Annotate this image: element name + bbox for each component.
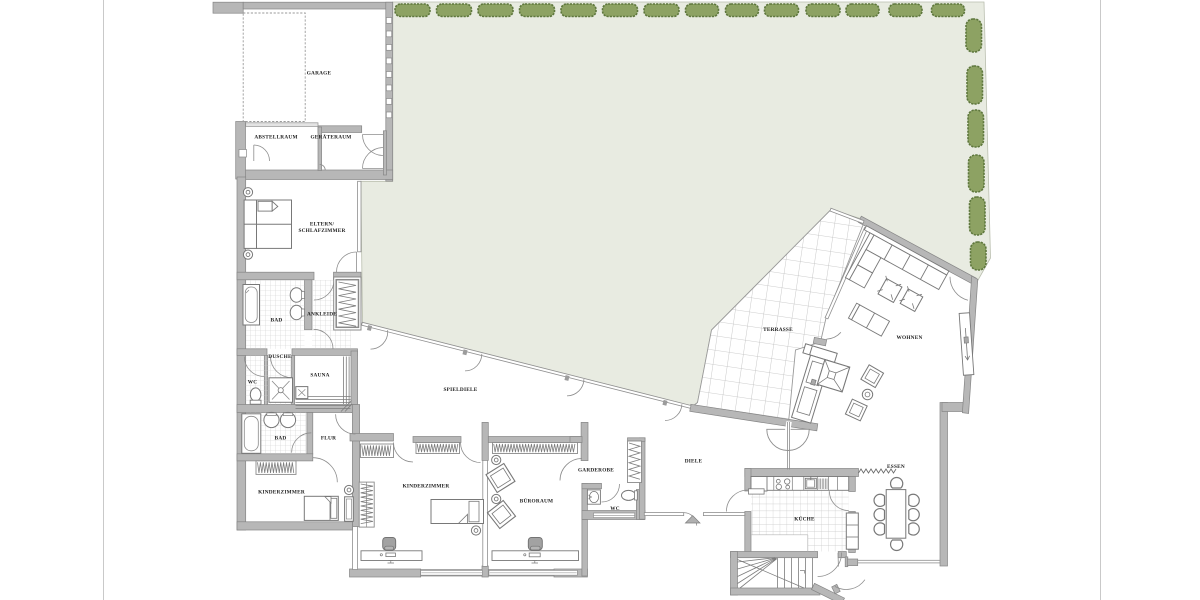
- svg-text:ELTERN/: ELTERN/: [310, 222, 335, 228]
- svg-text:KÜCHE: KÜCHE: [794, 516, 815, 523]
- svg-text:KINDERZIMMER: KINDERZIMMER: [258, 490, 305, 496]
- svg-text:BAD: BAD: [275, 436, 287, 442]
- svg-text:SCHLAFZIMMER: SCHLAFZIMMER: [298, 228, 345, 234]
- svg-text:KINDERZIMMER: KINDERZIMMER: [403, 484, 450, 490]
- svg-text:ESSEN: ESSEN: [887, 464, 905, 470]
- svg-text:WC: WC: [248, 380, 258, 386]
- svg-text:GARAGE: GARAGE: [307, 71, 332, 77]
- svg-text:DUSCHE: DUSCHE: [268, 354, 292, 360]
- svg-text:WOHNEN: WOHNEN: [896, 335, 922, 341]
- svg-text:FLUR: FLUR: [321, 436, 336, 442]
- svg-text:ABSTELLRAUM: ABSTELLRAUM: [254, 135, 297, 141]
- svg-text:WC: WC: [610, 506, 620, 512]
- svg-text:GARDEROBE: GARDEROBE: [578, 468, 614, 474]
- svg-text:DIELE: DIELE: [685, 459, 703, 465]
- svg-text:GERÄTERAUM: GERÄTERAUM: [310, 134, 351, 141]
- svg-text:SAUNA: SAUNA: [310, 373, 329, 379]
- svg-text:SPIELDIELE: SPIELDIELE: [444, 387, 478, 393]
- svg-text:BÜRORAUM: BÜRORAUM: [520, 498, 554, 505]
- svg-text:TERRASSE: TERRASSE: [763, 327, 793, 333]
- svg-text:ANKLEIDE: ANKLEIDE: [307, 312, 337, 318]
- svg-text:BAD: BAD: [271, 318, 283, 324]
